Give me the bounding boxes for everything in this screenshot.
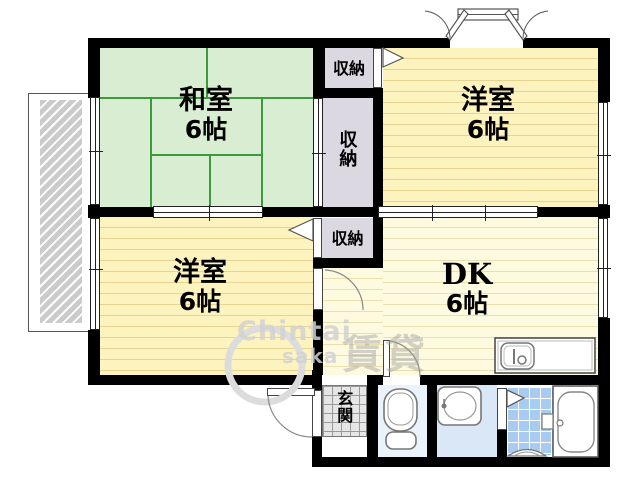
double-door-left-leaf — [446, 10, 468, 40]
label-closet-top: 収納 — [325, 60, 373, 78]
watermark-text2: saka — [282, 344, 338, 368]
bath-door-triangle — [507, 390, 524, 407]
label-youshitsu-top: 洋室 6帖 — [428, 86, 548, 144]
watermark-text1: Chintai — [237, 316, 352, 347]
closet-bottom-door-triangle — [289, 219, 313, 241]
label-washitsu: 和室 6帖 — [146, 86, 266, 144]
washbasin-icon — [438, 387, 481, 425]
closet-top-door-triangle — [383, 48, 403, 67]
label-closet-bottom: 収納 — [322, 230, 373, 248]
fixtures-overlay — [0, 0, 640, 480]
floor-plan: Chintai saka 賃貸 和室 6帖 洋室 6帖 洋室 6帖 DK 6帖 … — [0, 0, 640, 480]
bath-faucet-icon — [508, 450, 546, 457]
kitchen-sink-icon — [495, 338, 595, 373]
label-youshitsu-bottom: 洋室 6帖 — [140, 258, 260, 316]
double-door-left-swing — [425, 11, 450, 38]
double-door-right-swing — [523, 11, 548, 38]
toilet-icon — [384, 389, 417, 449]
label-dk: DK 6帖 — [407, 258, 527, 318]
label-closet-middle: 収納 — [338, 131, 359, 170]
dk-west-door-swing — [325, 270, 363, 310]
bathtub-icon — [553, 386, 598, 457]
watermark-brand: 賃貸 — [342, 322, 428, 380]
bath-shelf-icon — [542, 414, 553, 429]
label-genkan: 玄関 — [336, 390, 354, 425]
